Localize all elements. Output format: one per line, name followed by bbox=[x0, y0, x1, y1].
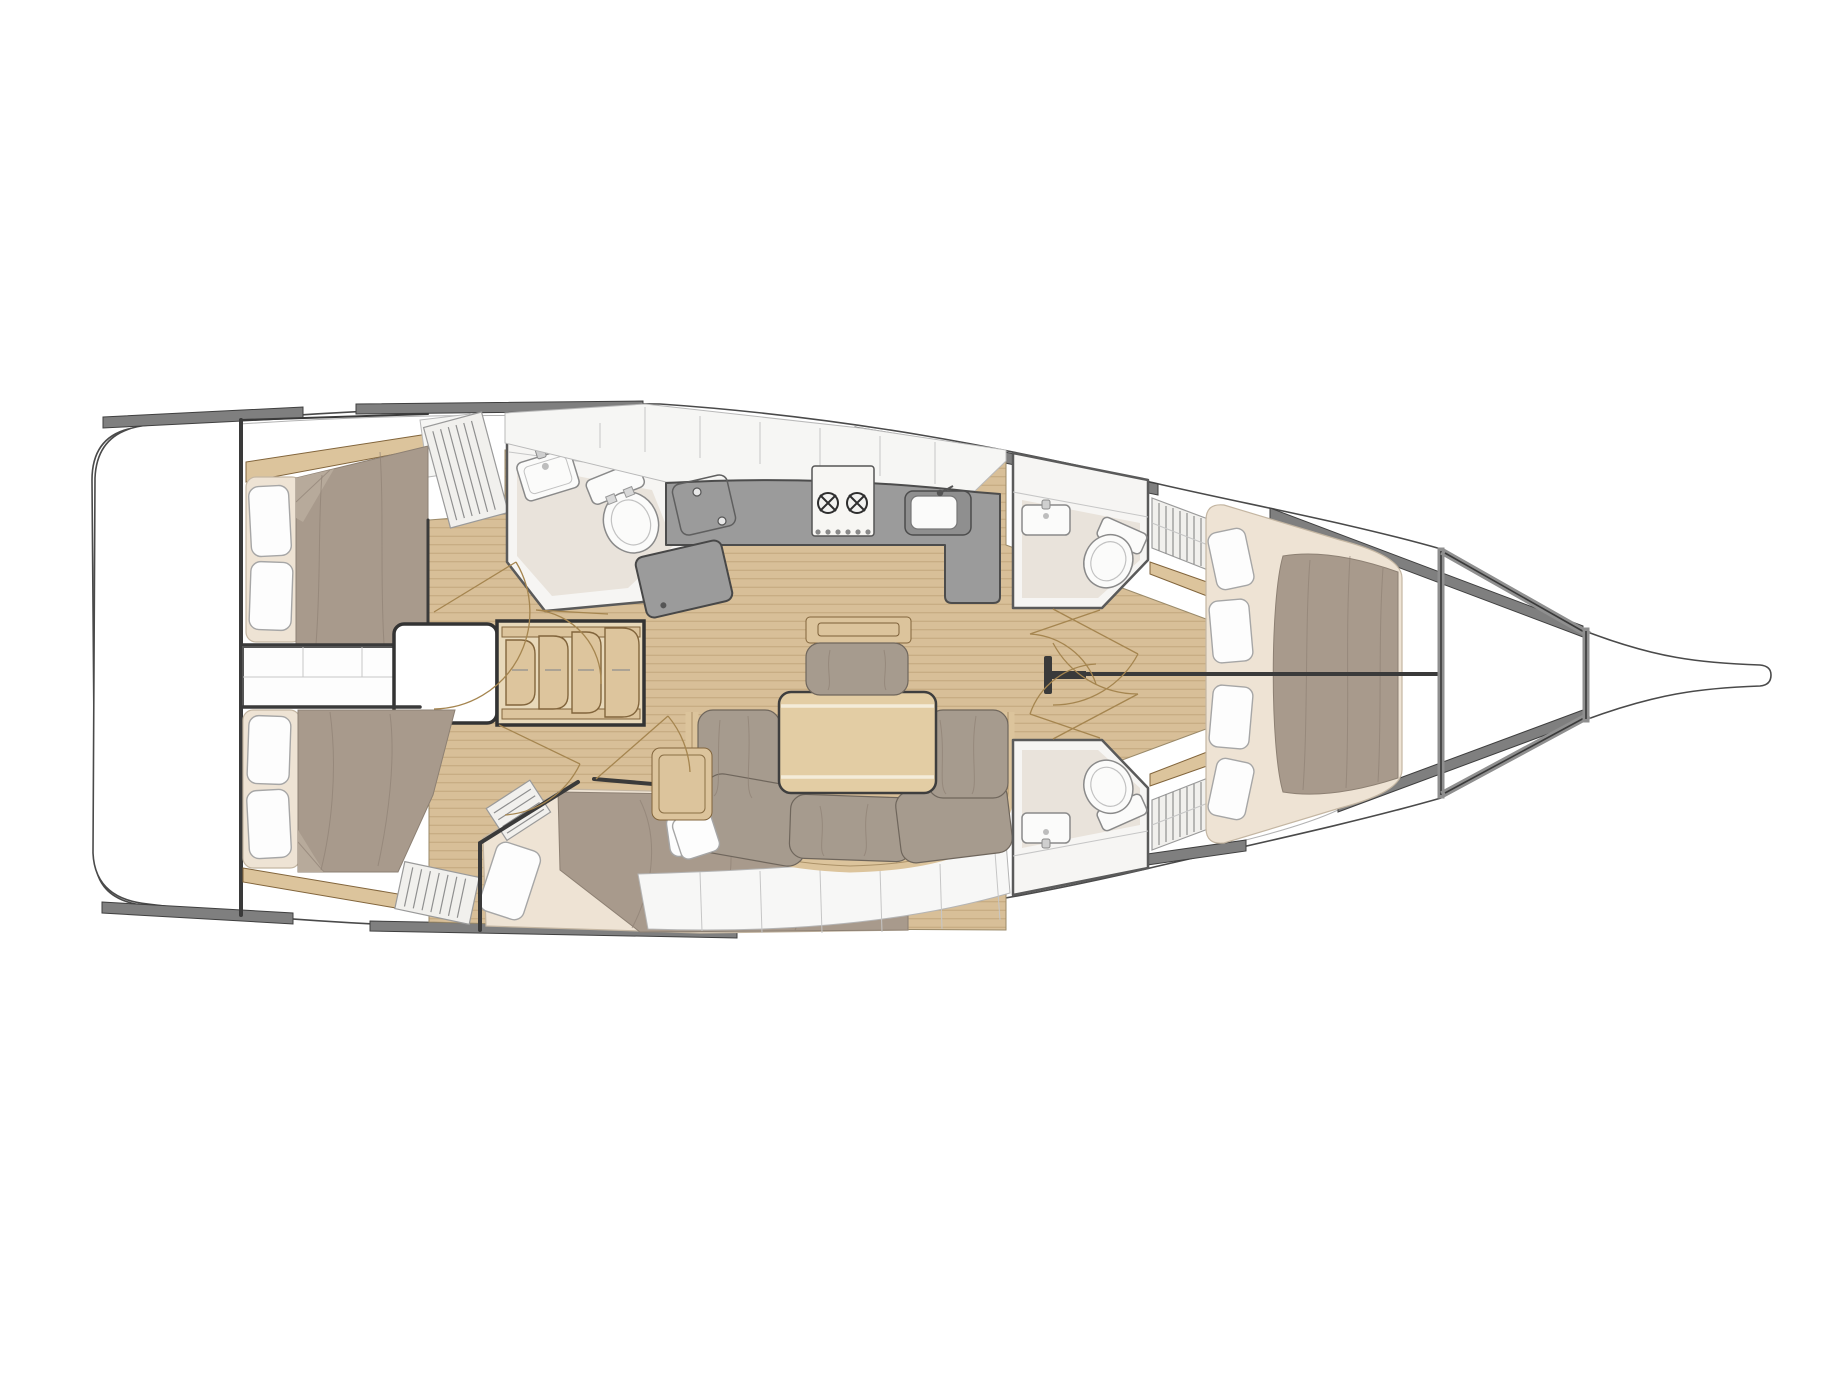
stove bbox=[812, 466, 874, 536]
bench-seat bbox=[806, 617, 911, 695]
fridge-hinge bbox=[693, 488, 701, 496]
side-cabinet bbox=[652, 748, 712, 820]
fridge-hinge bbox=[718, 517, 726, 525]
transom-platform bbox=[93, 420, 237, 915]
sink bbox=[1022, 500, 1070, 535]
yacht-floorplan-page bbox=[0, 0, 1832, 1374]
yacht-floorplan bbox=[0, 0, 1832, 1374]
pillow bbox=[246, 789, 292, 859]
pillow bbox=[249, 561, 293, 630]
pillow bbox=[247, 715, 291, 784]
sink bbox=[1022, 813, 1070, 848]
pillow bbox=[1208, 598, 1253, 663]
pillow bbox=[248, 485, 292, 557]
burner bbox=[847, 493, 867, 513]
burner bbox=[818, 493, 838, 513]
pillow bbox=[1208, 684, 1253, 749]
companionway bbox=[394, 621, 644, 725]
galley-sink bbox=[905, 486, 971, 535]
dining-table bbox=[779, 692, 936, 793]
